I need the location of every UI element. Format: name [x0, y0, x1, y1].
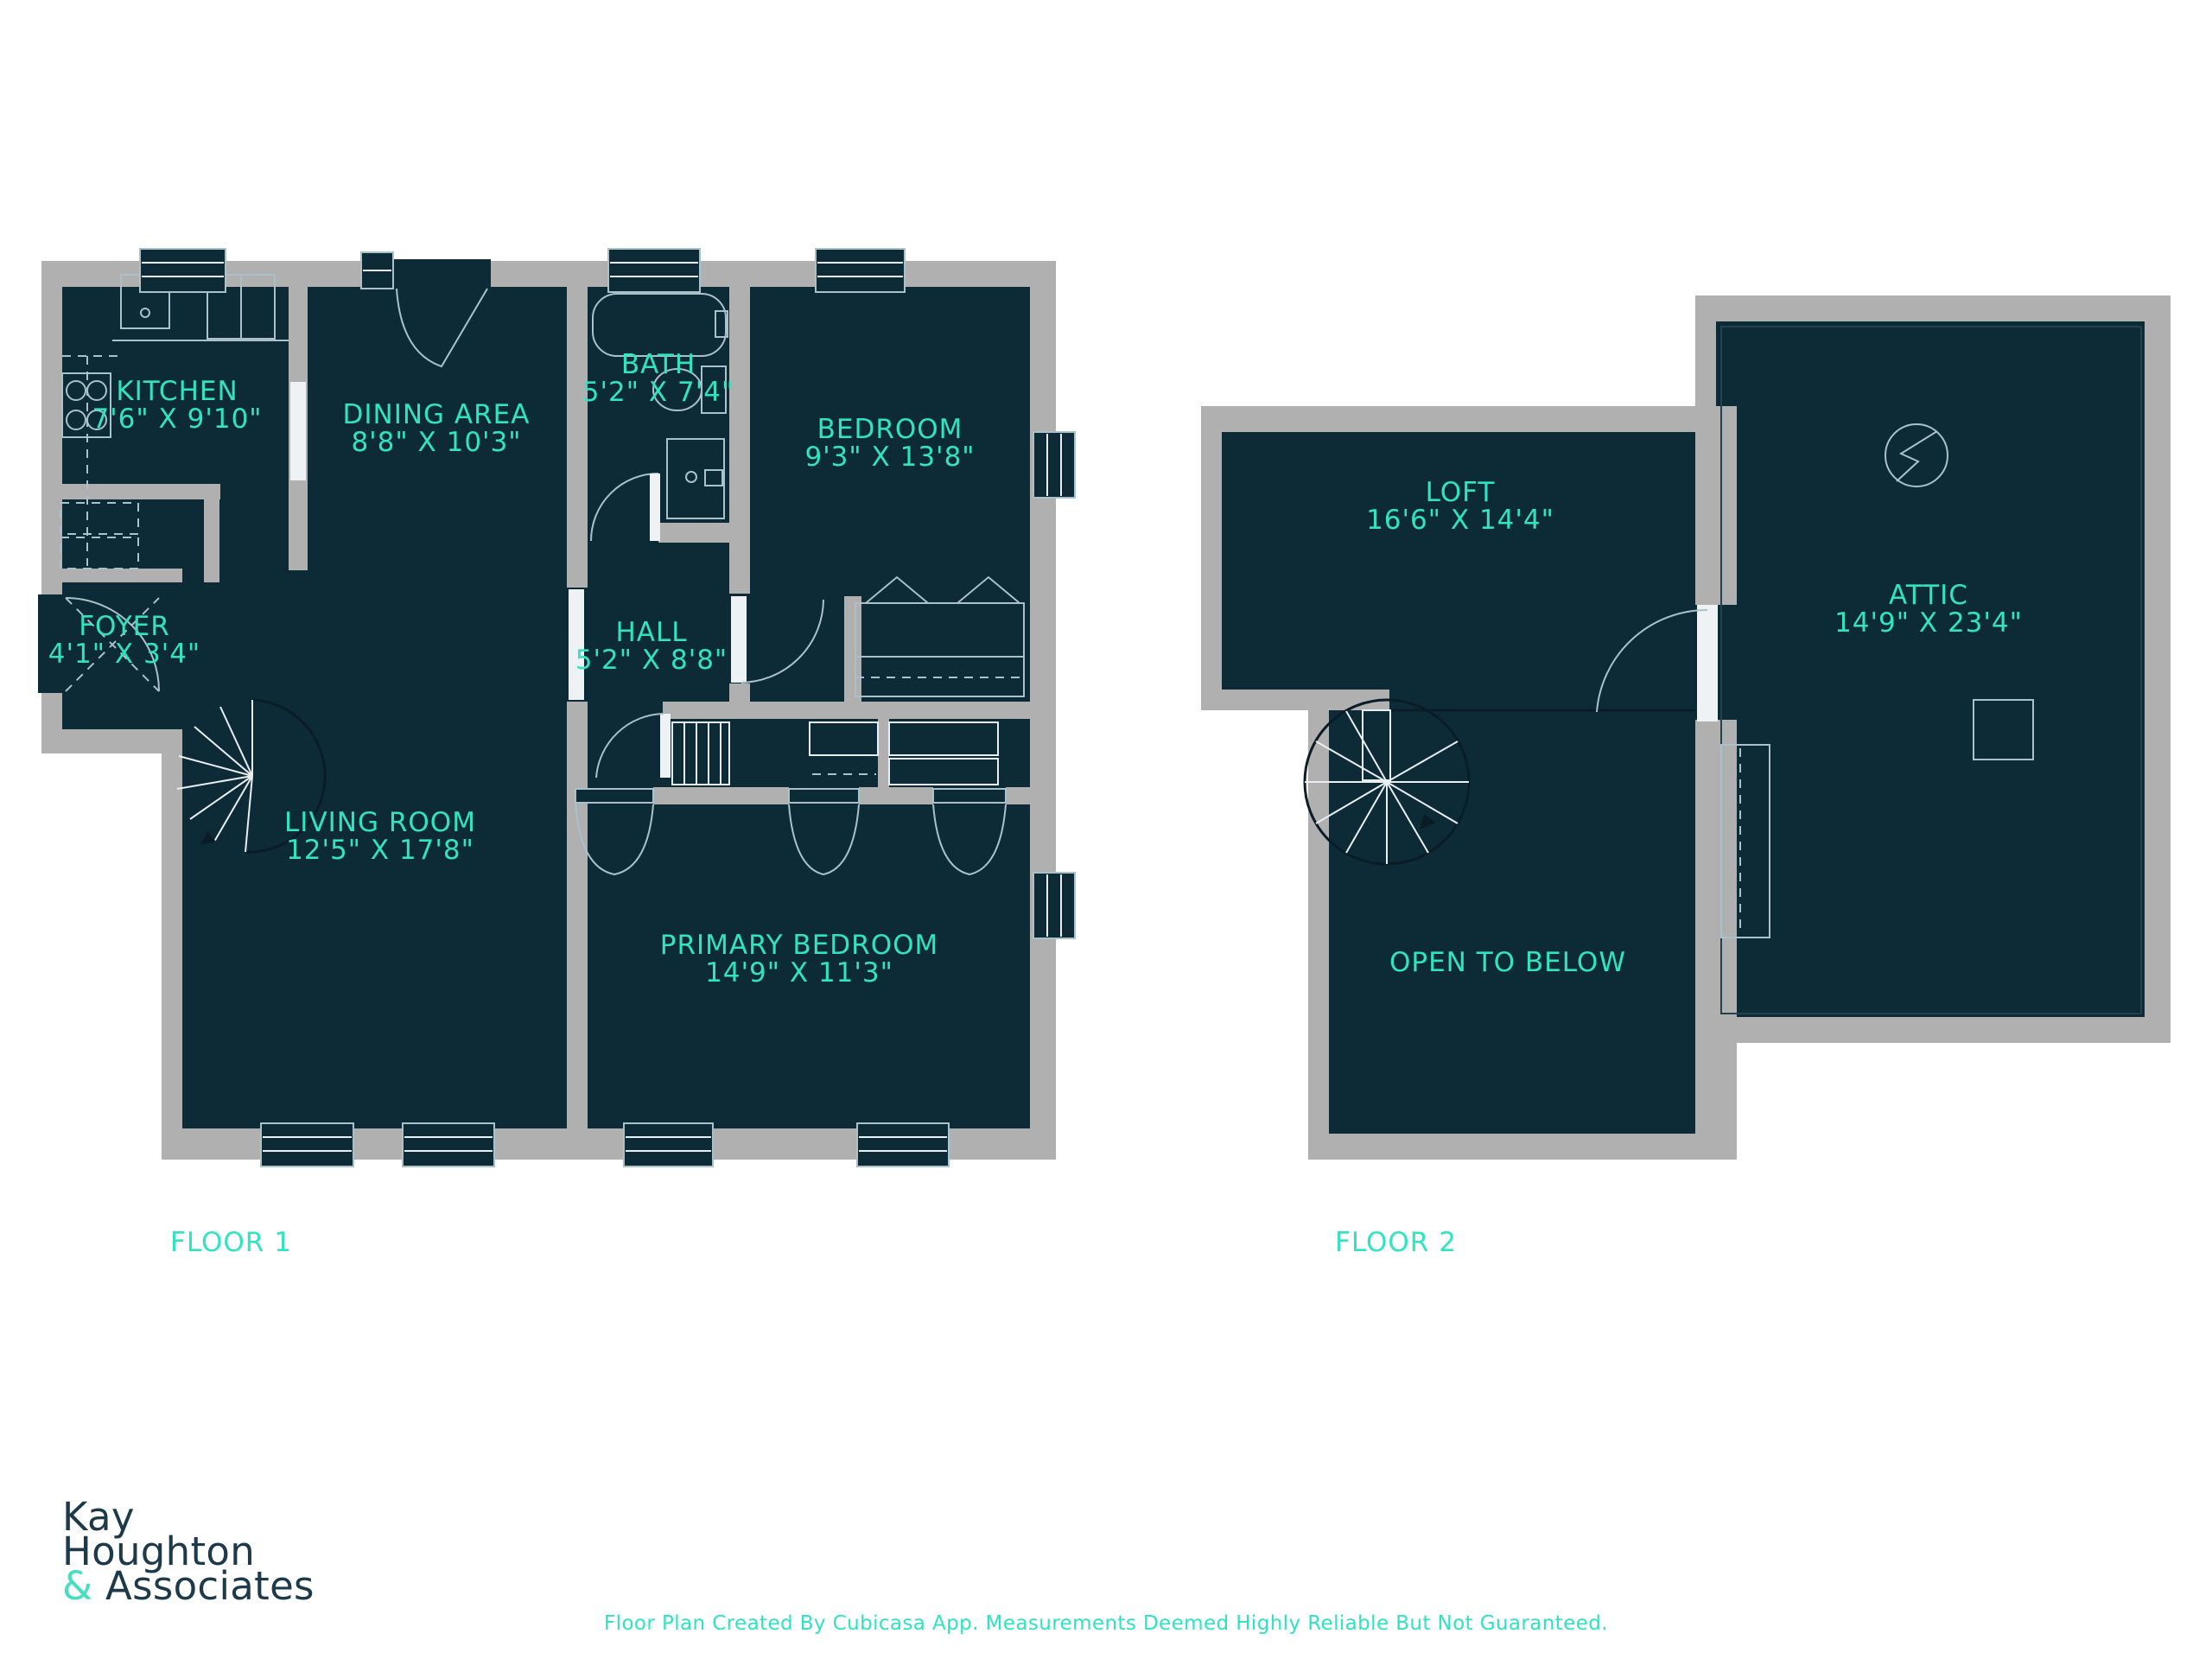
room-dims-loft: 16'6" X 14'4"	[1366, 505, 1554, 536]
room-label-living-room: LIVING ROOM	[284, 807, 476, 838]
floor-plan-page: KITCHEN 7'6" X 9'10" DINING AREA 8'8" X …	[0, 0, 2212, 1659]
room-dims-bath: 5'2" X 7'4"	[582, 377, 734, 408]
floor-plan-canvas: KITCHEN 7'6" X 9'10" DINING AREA 8'8" X …	[0, 0, 2212, 1659]
footer-disclaimer: Floor Plan Created By Cubicasa App. Meas…	[0, 1612, 2212, 1635]
room-label-foyer: FOYER	[79, 611, 170, 642]
room-dims-hall: 5'2" X 8'8"	[575, 645, 728, 676]
room-dims-primary-bedroom: 14'9" X 11'3"	[705, 957, 893, 988]
room-label-bedroom: BEDROOM	[817, 414, 963, 445]
logo-line-3-text: Associates	[105, 1563, 315, 1609]
floor-2-caption: FLOOR 2	[1335, 1227, 1457, 1258]
room-dims-foyer: 4'1" X 3'4"	[48, 639, 200, 670]
logo-ampersand: &	[62, 1563, 92, 1609]
logo-line-3: & Associates	[62, 1569, 315, 1604]
room-label-loft: LOFT	[1426, 477, 1496, 508]
company-logo: Kay Houghton & Associates	[62, 1500, 315, 1604]
room-dims-living-room: 12'5" X 17'8"	[286, 835, 474, 866]
room-label-dining-area: DINING AREA	[343, 399, 531, 430]
room-dims-kitchen: 7'6" X 9'10"	[92, 404, 262, 435]
room-label-attic: ATTIC	[1889, 580, 1968, 611]
room-label-primary-bedroom: PRIMARY BEDROOM	[660, 930, 939, 961]
room-label-open-to-below: OPEN TO BELOW	[1389, 947, 1626, 978]
room-label-hall: HALL	[615, 617, 687, 648]
room-dims-attic: 14'9" X 23'4"	[1834, 607, 2023, 639]
floor-1-plan: KITCHEN 7'6" X 9'10" DINING AREA 8'8" X …	[38, 249, 1075, 1166]
floor-2-plan: LOFT 16'6" X 14'4" ATTIC 14'9" X 23'4" O…	[1201, 296, 2171, 1160]
room-dims-dining-area: 8'8" X 10'3"	[351, 427, 521, 458]
room-label-bath: BATH	[621, 349, 696, 380]
room-dims-bedroom: 9'3" X 13'8"	[804, 442, 975, 473]
floor-1-caption: FLOOR 1	[170, 1227, 292, 1258]
room-label-kitchen: KITCHEN	[116, 376, 238, 407]
